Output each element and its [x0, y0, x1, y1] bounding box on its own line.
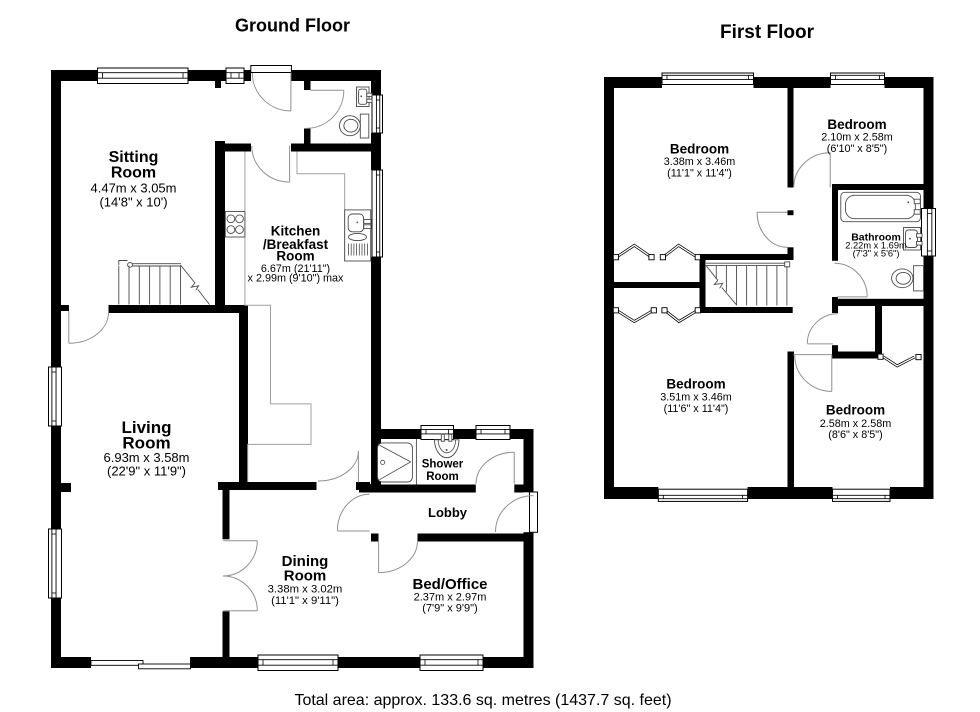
svg-text:3.51m x 3.46m: 3.51m x 3.46m [660, 392, 731, 404]
svg-text:Bedroom: Bedroom [827, 117, 886, 132]
svg-text:2.37m x 2.97m: 2.37m x 2.97m [414, 592, 487, 604]
svg-text:Bedroom: Bedroom [666, 377, 725, 392]
svg-text:Shower: Shower [422, 459, 464, 471]
svg-text:First Floor: First Floor [720, 22, 815, 43]
svg-text:Room: Room [284, 568, 327, 585]
svg-text:(8'6" x 8'5"): (8'6" x 8'5") [828, 429, 882, 441]
svg-text:(14'8" x 10'): (14'8" x 10') [99, 195, 167, 210]
svg-text:Room: Room [111, 165, 156, 182]
svg-text:(11'6" x 11'4"): (11'6" x 11'4") [664, 403, 729, 415]
svg-text:Bedroom: Bedroom [826, 403, 885, 418]
svg-text:Bed/Office: Bed/Office [412, 576, 487, 593]
svg-text:(11'1" x 11'4"): (11'1" x 11'4") [667, 167, 732, 179]
svg-text:3.38m x 3.46m: 3.38m x 3.46m [664, 156, 735, 168]
svg-text:(7'3" x 5'6"): (7'3" x 5'6") [853, 248, 900, 258]
svg-text:(7'9" x 9'9"): (7'9" x 9'9") [422, 603, 477, 615]
svg-text:2.10m x 2.58m: 2.10m x 2.58m [821, 132, 892, 144]
svg-text:Bedroom: Bedroom [670, 141, 729, 156]
svg-text:Room: Room [426, 471, 459, 483]
svg-text:2.58m x 2.58m: 2.58m x 2.58m [820, 418, 891, 430]
svg-text:Ground Floor: Ground Floor [235, 16, 350, 36]
svg-text:(6'10" x 8'5"): (6'10" x 8'5") [827, 143, 887, 155]
svg-text:Lobby: Lobby [428, 505, 468, 520]
svg-text:(22'9" x 11'9"): (22'9" x 11'9") [107, 464, 186, 479]
svg-text:Room: Room [276, 249, 314, 264]
svg-text:x 2.99m (9'10") max: x 2.99m (9'10") max [248, 272, 345, 284]
svg-text:Sitting: Sitting [109, 149, 159, 166]
svg-text:Total area: approx. 133.6 sq.: Total area: approx. 133.6 sq. metres (14… [294, 692, 671, 709]
svg-text:(11'1" x 9'11"): (11'1" x 9'11") [271, 595, 339, 607]
svg-text:3.38m x 3.02m: 3.38m x 3.02m [268, 583, 343, 595]
svg-text:4.47m x 3.05m: 4.47m x 3.05m [91, 181, 177, 196]
